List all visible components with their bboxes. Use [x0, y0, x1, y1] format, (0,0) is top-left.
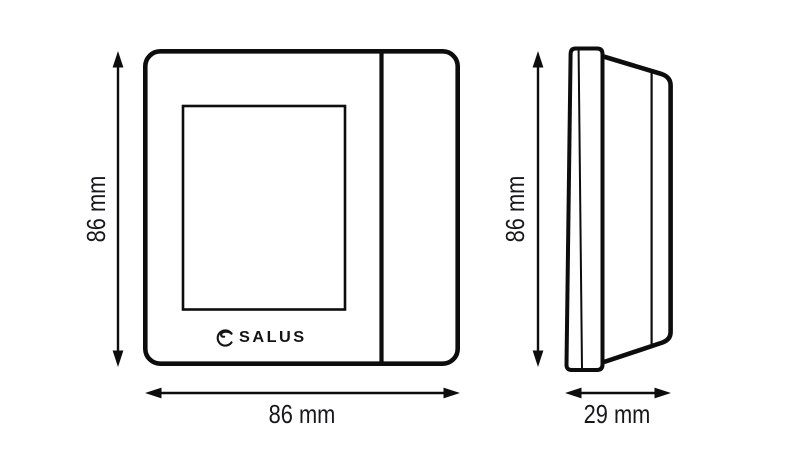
- front-height-dimension-label: 86 mm: [81, 167, 111, 251]
- side-wall-plate: [566, 49, 602, 371]
- side-height-dimension-label: 86 mm: [500, 167, 530, 251]
- salus-swirl-icon: [213, 327, 235, 349]
- salus-logo: SALUS: [213, 325, 323, 351]
- side-plate-inner-line: [579, 50, 582, 369]
- front-outer-body: [145, 51, 457, 363]
- diagram-linework: [0, 0, 800, 465]
- side-body-profile: [604, 57, 671, 363]
- dimension-lines: [113, 51, 671, 398]
- front-screen: [183, 106, 345, 310]
- thermostat-dimension-diagram: 86 mm 86 mm 86 mm 29 mm SALUS: [0, 0, 800, 465]
- salus-logo-text: SALUS: [239, 325, 307, 351]
- front-width-dimension-label: 86 mm: [243, 399, 361, 429]
- side-depth-dimension-label: 29 mm: [558, 399, 676, 429]
- front-view-drawing: [145, 51, 457, 364]
- side-view-drawing: [566, 49, 670, 371]
